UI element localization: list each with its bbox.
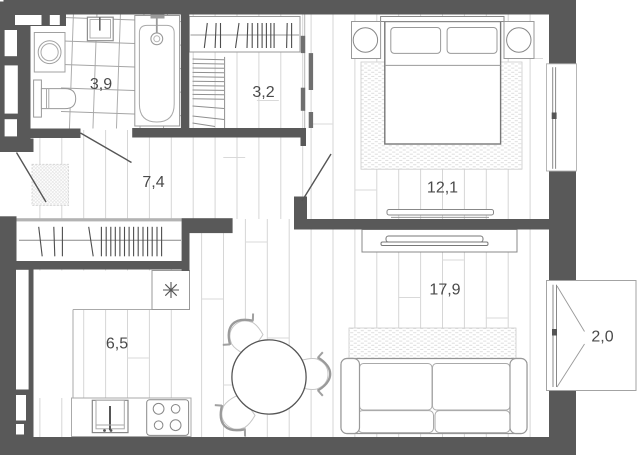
svg-text:6,5: 6,5	[106, 336, 128, 353]
svg-text:7,4: 7,4	[142, 174, 164, 191]
svg-text:12,1: 12,1	[427, 180, 458, 197]
svg-text:3,2: 3,2	[252, 84, 274, 101]
svg-text:3,9: 3,9	[90, 76, 112, 93]
svg-text:2,0: 2,0	[591, 329, 613, 346]
svg-text:17,9: 17,9	[429, 282, 460, 299]
